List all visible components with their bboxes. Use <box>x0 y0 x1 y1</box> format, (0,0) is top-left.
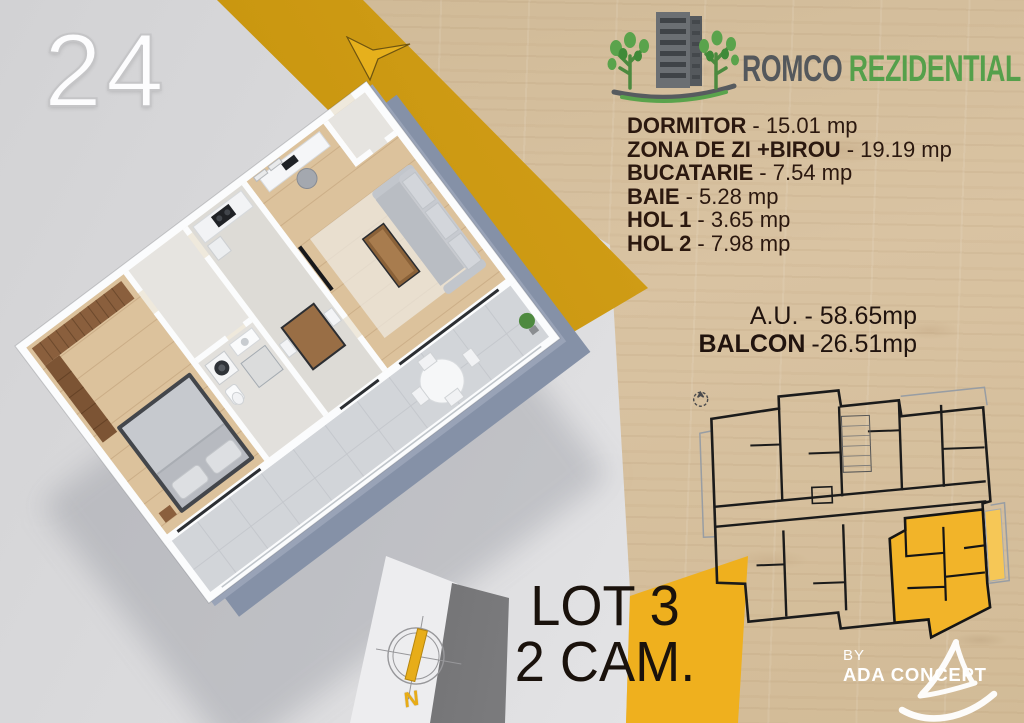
unit-number-badge: 24 <box>44 12 168 131</box>
room-row: ZONA DE ZI +BIROU- 19.19 mp <box>627 138 1022 162</box>
room-row: DORMITOR- 15.01 mp <box>627 114 1022 138</box>
brand-wordmark: ROMCOREZIDENTIAL <box>742 48 1021 90</box>
credit-studio-name: ADA CONCEPT <box>843 666 987 685</box>
lot-title: LOT 3 2 CAM. <box>486 578 724 690</box>
building-with-trees-icon <box>604 4 744 108</box>
flyer-canvas: N LOT 3 2 CAM. <box>0 0 1024 723</box>
lot-line2: 2 CAM. <box>486 634 724 690</box>
mini-compass-icon <box>693 392 707 406</box>
room-row: BUCATARIE- 7.54 mp <box>627 161 1022 185</box>
area-totals: A.U.- 58.65mp BALCON-26.51mp <box>617 302 917 358</box>
total-usable-area: A.U.- 58.65mp <box>617 302 917 330</box>
credit-by-label: BY <box>843 648 987 663</box>
room-area-list: DORMITOR- 15.01 mp ZONA DE ZI +BIROU- 19… <box>627 114 1022 255</box>
total-balcony-area: BALCON-26.51mp <box>617 330 917 358</box>
lot-line1: LOT 3 <box>486 578 724 634</box>
studio-credit: BY ADA CONCEPT <box>843 648 987 685</box>
room-row: HOL 2- 7.98 mp <box>627 232 1022 256</box>
down-left-arrow-icon <box>344 36 412 84</box>
brand-name-primary: ROMCO <box>742 48 842 89</box>
brand-name-secondary: REZIDENTIAL <box>849 48 1021 89</box>
compass-north-label: N <box>403 686 420 713</box>
room-row: HOL 1- 3.65 mp <box>627 208 1022 232</box>
room-row: BAIE- 5.28 mp <box>627 185 1022 209</box>
floor-plate-miniplan <box>693 380 1015 658</box>
compass-icon <box>376 616 466 708</box>
highlighted-unit <box>889 509 1007 639</box>
